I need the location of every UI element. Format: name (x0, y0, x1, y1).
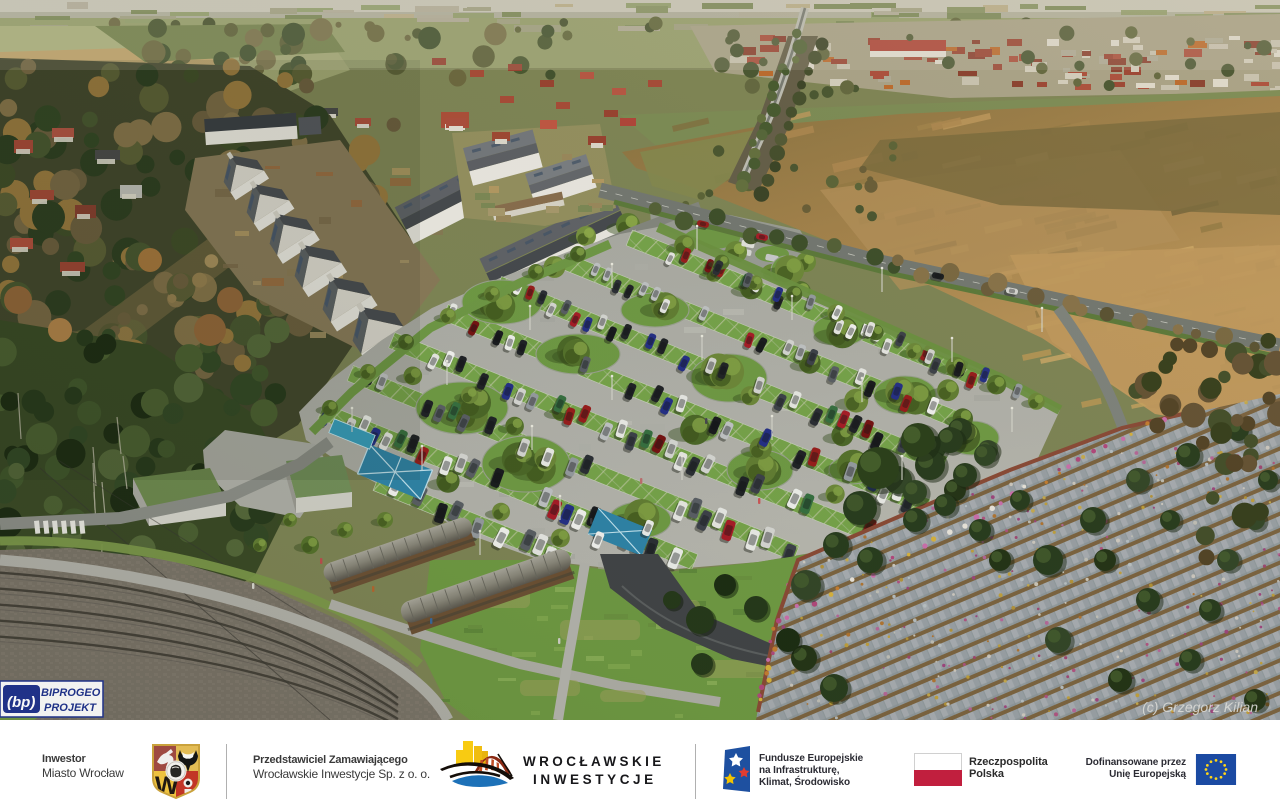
svg-text:(bp): (bp) (7, 694, 35, 711)
svg-text:PROJEKT: PROJEKT (44, 702, 97, 714)
svg-text:(c) Grzegorz Kilian: (c) Grzegorz Kilian (1142, 699, 1258, 715)
svg-text:BIPROGEO: BIPROGEO (41, 687, 101, 699)
